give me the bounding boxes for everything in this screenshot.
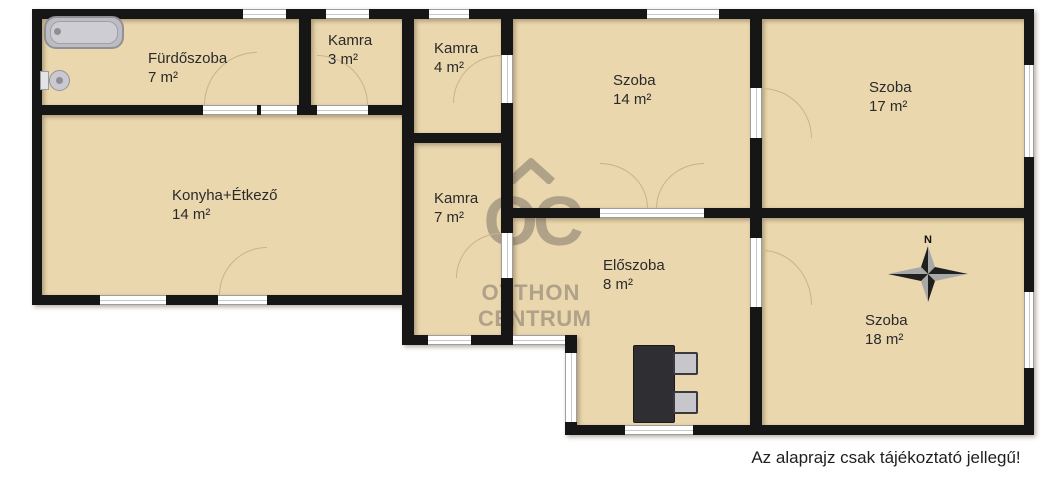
door-opening: [218, 295, 267, 305]
room-name: Konyha+Étkező: [172, 187, 278, 206]
window-marker: [625, 425, 693, 435]
door-opening: [501, 55, 513, 103]
room-area: 17 m²: [869, 98, 912, 117]
room-label-eloszoba: Előszoba 8 m²: [603, 257, 665, 295]
wall-segment: [32, 9, 1034, 19]
door-opening: [203, 105, 257, 115]
door-opening: [750, 88, 762, 138]
room-label-szoba-17: Szoba 17 m²: [869, 79, 912, 117]
bathtub-faucet-icon: [54, 28, 61, 35]
window-marker: [429, 9, 469, 19]
wall-segment: [32, 9, 42, 305]
window-marker: [647, 9, 719, 19]
room-label-szoba-18: Szoba 18 m²: [865, 312, 908, 350]
room-area: 14 m²: [613, 91, 656, 110]
room-name: Szoba: [869, 79, 912, 98]
room-area: 18 m²: [865, 331, 908, 350]
double-door-opening: [600, 208, 704, 218]
toilet-icon: [49, 70, 70, 91]
bathtub-icon: [44, 16, 124, 49]
room-label-konyha: Konyha+Étkező 14 m²: [172, 187, 278, 225]
room-label-szoba-14: Szoba 14 m²: [613, 72, 656, 110]
toilet-bowl-center: [56, 77, 63, 84]
room-area: 3 m²: [328, 51, 372, 70]
room-name: Szoba: [613, 72, 656, 91]
room-name: Kamra: [434, 40, 478, 59]
room-area: 14 m²: [172, 206, 278, 225]
floor-plan: OC OTTHON CENTRUM: [0, 0, 1064, 500]
window-marker: [261, 105, 297, 115]
room-label-kamra-3: Kamra 3 m²: [328, 32, 372, 70]
room-name: Kamra: [328, 32, 372, 51]
door-opening: [750, 238, 762, 307]
wall-segment: [402, 133, 513, 143]
room-area: 8 m²: [603, 276, 665, 295]
window-marker: [513, 335, 565, 345]
room-name: Kamra: [434, 190, 478, 209]
window-marker: [1024, 65, 1034, 157]
wall-segment: [299, 9, 311, 115]
room-area: 4 m²: [434, 59, 478, 78]
room-name: Fürdőszoba: [148, 50, 227, 69]
toilet-tank-icon: [40, 71, 49, 90]
room-name: Előszoba: [603, 257, 665, 276]
door-opening: [317, 105, 368, 115]
window-marker: [100, 295, 166, 305]
chair-icon: [673, 352, 698, 375]
compass-rose-icon: [885, 246, 971, 306]
room-area: 7 m²: [148, 69, 227, 88]
table-icon: [633, 345, 675, 423]
room-label-furdoszoba: Fürdőszoba 7 m²: [148, 50, 227, 88]
window-marker: [243, 9, 286, 19]
chair-icon: [673, 391, 698, 414]
room-name: Szoba: [865, 312, 908, 331]
door-opening: [501, 233, 513, 278]
disclaimer-text: Az alaprajz csak tájékoztató jellegű!: [700, 448, 1064, 468]
room-area: 7 m²: [434, 209, 478, 228]
window-marker: [326, 9, 369, 19]
room-label-kamra-4: Kamra 4 m²: [434, 40, 478, 78]
window-marker: [565, 353, 577, 422]
window-marker: [1024, 292, 1034, 368]
wall-segment: [402, 9, 414, 345]
wall-segment: [750, 9, 762, 435]
window-marker: [428, 335, 471, 345]
wall-segment: [501, 208, 1034, 218]
compass-north-label: N: [885, 234, 971, 246]
room-label-kamra-7: Kamra 7 m²: [434, 190, 478, 228]
